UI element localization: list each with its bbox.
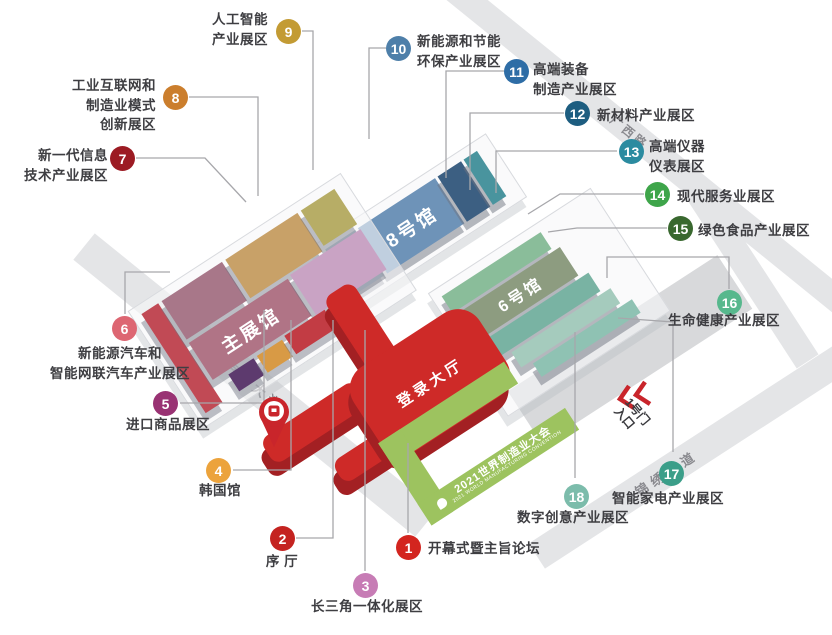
- marker-7: 7: [110, 146, 135, 171]
- label-opening-ceremony: 开幕式暨主旨论坛: [428, 539, 578, 559]
- marker-5: 5: [153, 391, 178, 416]
- label-high-end-equipment: 高端装备 制造产业展区: [533, 60, 653, 99]
- label-industrial-internet: 工业互联网和 制造业模式 创新展区: [48, 76, 156, 135]
- label-smart-appliances: 智能家电产业展区: [612, 489, 752, 509]
- marker-12: 12: [565, 101, 590, 126]
- marker-15: 15: [668, 216, 693, 241]
- marker-3: 3: [353, 573, 378, 598]
- marker-2: 2: [270, 526, 295, 551]
- label-yangtze-delta: 长三角一体化展区: [305, 597, 429, 617]
- marker-4: 4: [206, 458, 231, 483]
- callout-line-8: [189, 97, 258, 196]
- label-new-materials: 新材料产业展区: [597, 106, 727, 126]
- marker-8: 8: [163, 85, 188, 110]
- label-new-energy-env: 新能源和节能 环保产业展区: [417, 32, 529, 71]
- label-life-health: 生命健康产业展区: [668, 311, 808, 331]
- marker-10: 10: [386, 36, 411, 61]
- marker-1: 1: [396, 535, 421, 560]
- label-nev-zone: 新能源汽车和 智能网联汽车产业展区: [8, 344, 232, 383]
- marker-6: 6: [112, 316, 137, 341]
- label-korea-pavilion: 韩国馆: [180, 481, 260, 501]
- plaza-banner-subtext: 2021 WORLD MANUFACTURING CONVENTION: [453, 430, 564, 505]
- wmc-logo: [435, 496, 449, 510]
- marker-13: 13: [619, 139, 644, 164]
- callout-line-10: [369, 48, 386, 139]
- label-digital-creative: 数字创意产业展区: [517, 508, 647, 528]
- label-instruments: 高端仪器 仪表展区: [649, 137, 739, 176]
- marker-17: 17: [659, 461, 684, 486]
- callout-line-7: [136, 158, 246, 202]
- label-info-tech: 新一代信息 技术产业展区: [18, 146, 108, 185]
- plaza-banner-text: 2021世界制造业大会 2021 WORLD MANUFACTURING CON…: [446, 420, 563, 505]
- label-import-goods: 进口商品展区: [108, 415, 228, 435]
- gate-1-entrance-label: 1号门 入口: [611, 396, 652, 437]
- label-modern-services: 现代服务业展区: [677, 187, 807, 207]
- label-prologue-hall: 序 厅: [246, 552, 318, 572]
- marker-14: 14: [645, 182, 670, 207]
- label-ai-zone: 人工智能 产业展区: [158, 10, 268, 49]
- marker-9: 9: [276, 19, 301, 44]
- hall8-name: 8号馆: [380, 199, 443, 253]
- marker-18: 18: [564, 484, 589, 509]
- callout-line-9: [302, 31, 313, 170]
- venue-map: 庐州大道 广西路 锦绣大道 8号馆 6号馆 主展馆: [0, 0, 832, 635]
- label-green-food: 绿色食品产业展区: [698, 221, 832, 241]
